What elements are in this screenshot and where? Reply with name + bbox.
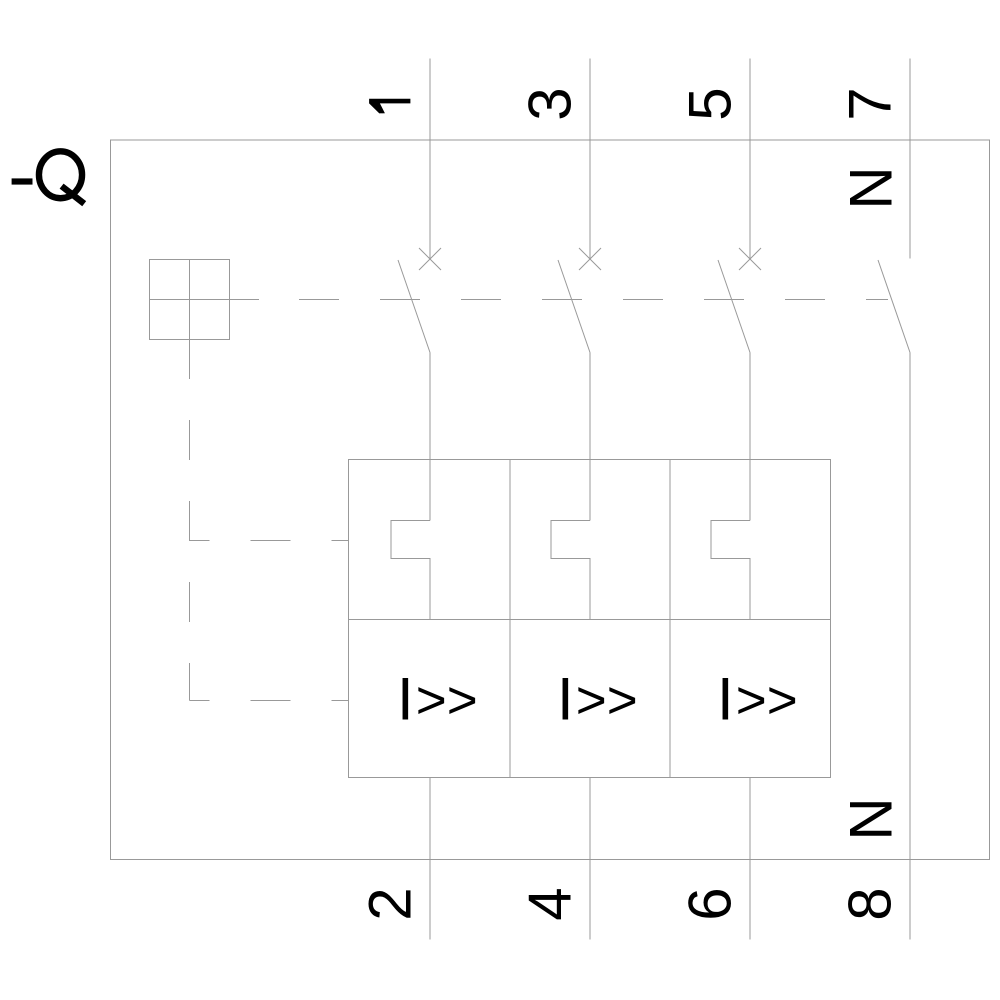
svg-text:8: 8: [837, 887, 904, 920]
svg-text:>>: >>: [736, 671, 798, 730]
svg-text:3: 3: [517, 87, 584, 120]
svg-text:4: 4: [517, 887, 584, 920]
svg-text:2: 2: [357, 887, 424, 920]
svg-text:6: 6: [677, 887, 744, 920]
svg-text:I: I: [717, 666, 734, 733]
svg-text:I: I: [557, 666, 574, 733]
svg-text:5: 5: [677, 87, 744, 120]
svg-text:7: 7: [837, 87, 904, 120]
svg-text:N: N: [838, 166, 905, 209]
svg-text:I: I: [397, 666, 414, 733]
svg-text:>>: >>: [576, 671, 638, 730]
svg-text:>>: >>: [416, 671, 478, 730]
svg-text:N: N: [838, 797, 905, 840]
